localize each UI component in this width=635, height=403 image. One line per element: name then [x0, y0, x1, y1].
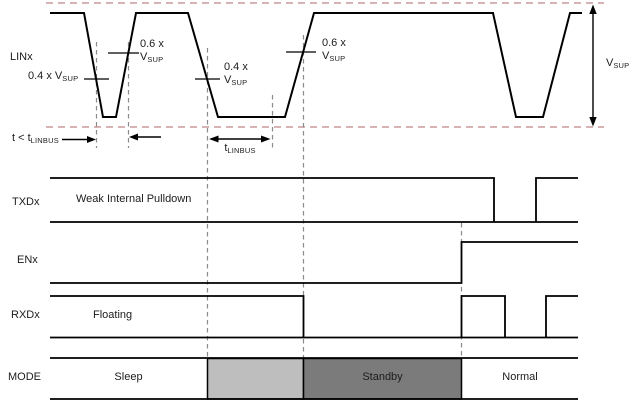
- en-waveform: [50, 242, 578, 283]
- mode-transition-box: [208, 359, 304, 400]
- threshold-label-06-first-sub: SUP: [147, 55, 163, 64]
- vsup-label: VSUP: [606, 57, 629, 70]
- threshold-label-06-second-sub: SUP: [329, 54, 345, 63]
- vsup-label-sub: SUP: [613, 61, 629, 70]
- threshold-label-04-second-line1: 0.4 x: [224, 61, 248, 74]
- threshold-label-04-second-sub: SUP: [231, 78, 247, 87]
- rxd-row-label: RXDx: [11, 309, 40, 321]
- threshold-label-06-first-line1: 0.6 x: [140, 38, 164, 51]
- mode-row-label: MODE: [8, 371, 41, 383]
- mode-state-sleep: Sleep: [50, 371, 207, 384]
- threshold-label-06-second-line2: VSUP: [322, 50, 346, 63]
- threshold-label-04-first: 0.4 x VSUP: [28, 70, 78, 83]
- threshold-label-06-second: 0.6 x VSUP: [322, 37, 346, 63]
- threshold-label-04-second: 0.4 x VSUP: [224, 61, 248, 87]
- en-row-label: ENx: [17, 254, 38, 266]
- vsup-arrow: [589, 5, 596, 127]
- threshold-label-06-first: 0.6 x VSUP: [140, 38, 164, 64]
- lin-waveform: [50, 13, 582, 117]
- t-linbus-label-sub: LINBUS: [227, 146, 255, 155]
- timing-diagram: LINx TXDx ENx RXDx MODE 0.4 x VSUP 0.6 x…: [0, 0, 635, 403]
- threshold-label-06-first-line2: VSUP: [140, 51, 164, 64]
- threshold-label-06-second-line1: 0.6 x: [322, 37, 346, 50]
- t-short-arrow: [62, 134, 161, 144]
- rxd-state-label: Floating: [93, 309, 132, 322]
- threshold-label-04-first-text: 0.4 x V: [28, 70, 62, 82]
- txd-state-label: Weak Internal Pulldown: [76, 193, 191, 206]
- threshold-label-04-first-sub: SUP: [62, 74, 78, 83]
- t-linbus-label: tLINBUS: [212, 142, 268, 155]
- lin-row-label: LINx: [10, 51, 33, 63]
- threshold-label-04-second-line2: VSUP: [224, 74, 248, 87]
- t-short-label-text: t < t: [12, 132, 31, 144]
- mode-state-normal: Normal: [462, 371, 578, 384]
- t-short-label-sub: LINBUS: [31, 136, 59, 145]
- t-short-label: t < tLINBUS: [12, 132, 59, 145]
- txd-row-label: TXDx: [12, 196, 40, 208]
- mode-state-standby: Standby: [303, 371, 462, 384]
